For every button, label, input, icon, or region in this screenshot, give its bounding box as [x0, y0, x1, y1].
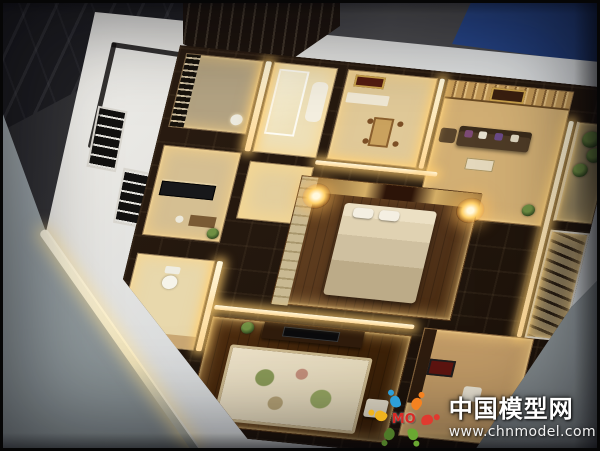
toilet-tank	[164, 266, 181, 275]
sideboard-cabinet	[345, 92, 389, 106]
site-url: www.chnmodel.com	[449, 424, 596, 440]
pillow	[352, 207, 374, 219]
room-balcony-laundry	[168, 53, 264, 135]
logo-figure-orange-icon	[407, 389, 427, 412]
wall-art-frame	[353, 75, 386, 90]
dining-chair	[397, 121, 404, 127]
potted-plant	[205, 228, 220, 240]
dining-chair	[392, 141, 399, 147]
coffee-table	[464, 158, 495, 173]
washer-appliance	[229, 114, 244, 126]
logo-figure-olive-icon	[377, 425, 397, 448]
desk	[188, 215, 217, 228]
bathtub	[304, 81, 330, 122]
site-name: 中国模型网	[449, 396, 574, 424]
potted-plant	[571, 163, 589, 178]
potted-plant	[240, 321, 256, 334]
shower-glass	[264, 69, 310, 137]
potted-plant	[585, 148, 600, 164]
potted-plant	[520, 204, 536, 217]
red-lacquer-chest	[426, 359, 456, 378]
watermark-text: 中国模型网 www.chnmodel.com	[449, 396, 596, 441]
armchair	[438, 127, 458, 143]
logo-figure-green-icon	[405, 426, 423, 449]
watermark: MO 中国模型网 www.chnmodel.com	[372, 389, 596, 447]
potted-plant	[580, 131, 600, 149]
black-counter-tv-panel	[159, 181, 217, 201]
toilet	[160, 275, 178, 290]
desk-chair	[175, 215, 185, 223]
logo-figure-blue-icon	[384, 387, 403, 410]
room-master-bedroom	[271, 175, 482, 321]
pillow	[378, 210, 400, 222]
logo-mo-text: MO	[392, 412, 416, 427]
logo-figure-red-icon	[418, 411, 440, 428]
double-bed	[323, 203, 437, 304]
chnmodel-logo: MO	[372, 389, 444, 447]
room-kitchen-study	[142, 145, 242, 243]
floral-rug	[212, 344, 372, 434]
architectural-model-photo: MO 中国模型网 www.chnmodel.com	[0, 0, 600, 451]
